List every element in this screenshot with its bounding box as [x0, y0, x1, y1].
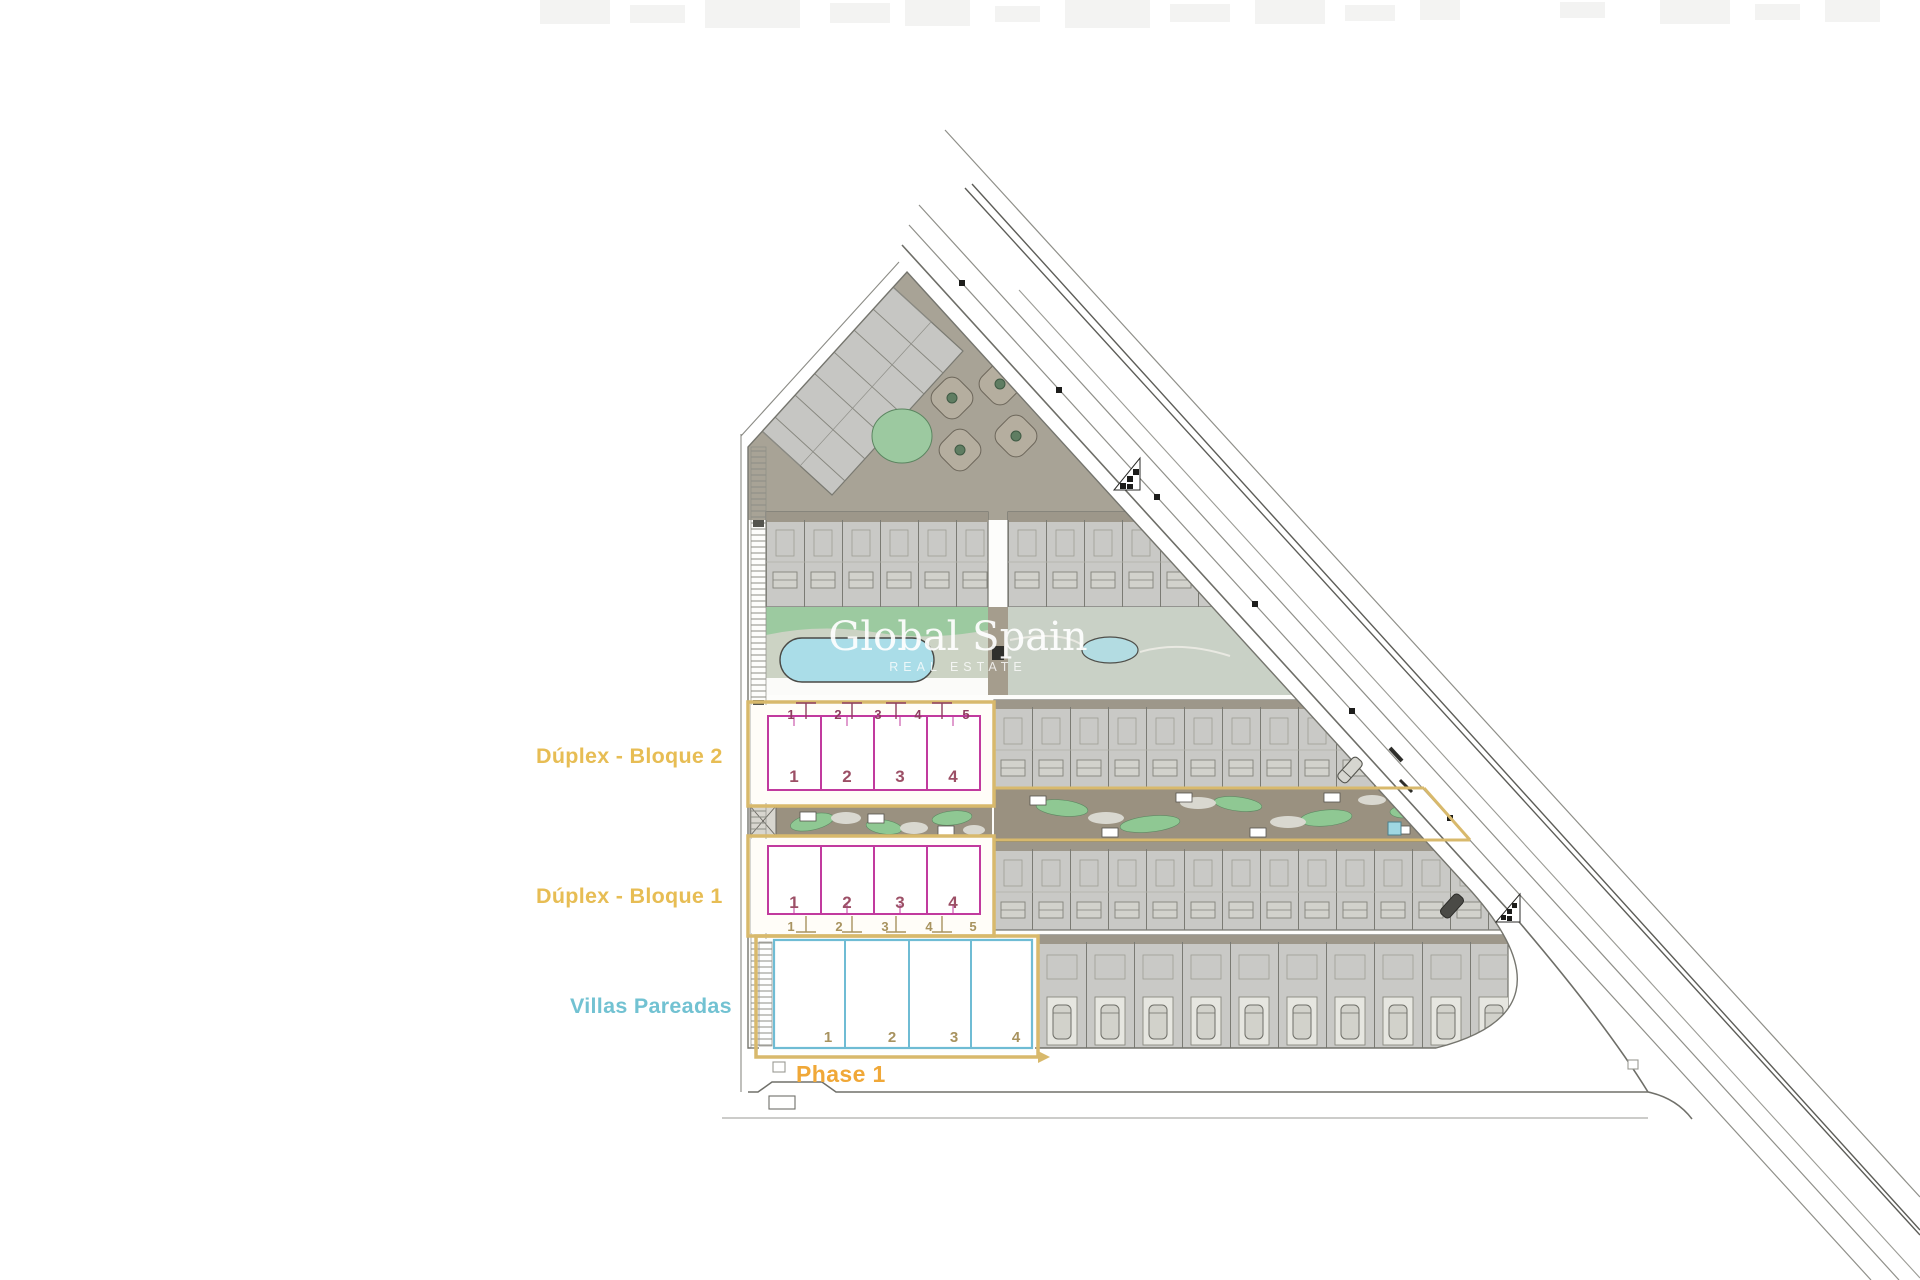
label-phase1: Phase 1: [796, 1061, 886, 1087]
unit-number: 2: [842, 893, 851, 912]
watermark-title: Global Spain: [828, 614, 1087, 660]
parcel-number: 1: [787, 707, 794, 722]
checkered-marker-icon: [1496, 894, 1520, 922]
parcel-number: 1: [787, 919, 794, 934]
site-plan-drawing: 1 2 3 4 5 1 2 3 4 1 2 3 4: [0, 0, 1920, 1280]
parcel-number: 4: [914, 707, 922, 722]
driveway-entry-box: [769, 1096, 795, 1109]
bloque1-block: 1 2 3 4 1 2 3 4 5: [751, 839, 991, 934]
unit-number: 1: [789, 767, 798, 786]
utility-box: [773, 1062, 785, 1072]
unit-number: 1: [789, 893, 798, 912]
watermark-tagline: REAL ESTATE: [889, 660, 1026, 674]
bloque2-block: 1 2 3 4 5 1 2 3 4: [751, 703, 991, 803]
unit-number: 2: [842, 767, 851, 786]
villas-block: 1 2 3 4: [759, 939, 1035, 1054]
label-bloque1: Dúplex - Bloque 1: [536, 884, 723, 908]
townhouse-row-bottom: [1038, 935, 1508, 1048]
unit-number: 3: [950, 1029, 958, 1046]
plunge-pool: [1388, 822, 1401, 835]
parcel-number: 2: [834, 707, 841, 722]
apex-building: [0, 0, 963, 495]
garden-strip-right: [994, 788, 1470, 840]
unit-number: 4: [948, 893, 958, 912]
villas-units-outline: [774, 940, 1032, 1048]
garden-strip-left: [750, 806, 992, 836]
unit-number: 3: [895, 893, 904, 912]
parcel-number: 3: [881, 919, 888, 934]
parcel-number: 4: [925, 919, 933, 934]
apartment-row-upper: [766, 512, 1308, 607]
unit-number: 4: [1012, 1029, 1021, 1046]
unit-number: 4: [948, 767, 958, 786]
site-plan-page: 1 2 3 4 5 1 2 3 4 1 2 3 4: [0, 0, 1920, 1280]
unit-number: 2: [888, 1029, 896, 1046]
lawn-blob: [872, 409, 932, 463]
label-bloque2: Dúplex - Bloque 2: [536, 744, 723, 768]
unit-number: 1: [824, 1029, 832, 1046]
pond: [1082, 637, 1138, 663]
unit-number: 3: [895, 767, 904, 786]
survey-square-marker: [1069, 407, 1076, 414]
parcel-number: 5: [962, 707, 969, 722]
phase-arrow-icon: [1038, 1051, 1050, 1063]
parcel-number: 2: [835, 919, 842, 934]
parcel-number: 5: [969, 919, 976, 934]
label-villas: Villas Pareadas: [570, 994, 732, 1018]
faded-top-plan-fragments: [540, 0, 1880, 28]
villas-edge-hatch: [759, 942, 772, 1046]
parcel-number: 3: [874, 707, 881, 722]
road-edge-marks: [1390, 748, 1412, 792]
townhouse-row-mid-upper: [994, 700, 1456, 788]
utility-box: [1628, 1060, 1638, 1069]
checkered-marker-icon: [1114, 458, 1140, 490]
